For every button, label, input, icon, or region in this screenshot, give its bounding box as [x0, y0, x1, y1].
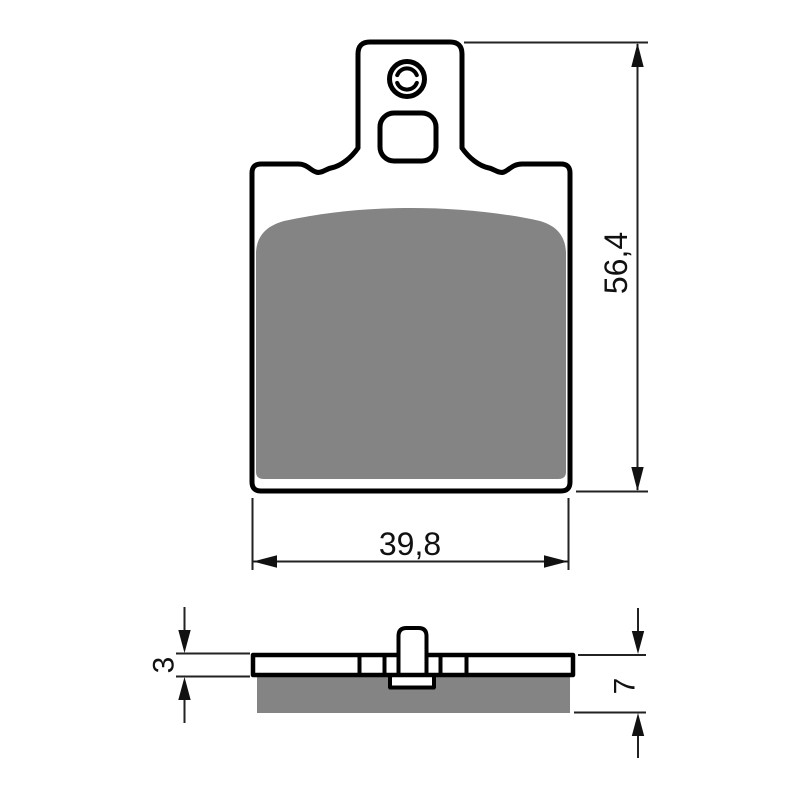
arrowhead-up-icon: [178, 677, 190, 700]
plate-thickness-label: 3: [148, 657, 181, 674]
arrowhead-down-icon: [178, 630, 190, 653]
pad-thickness-label: 7: [609, 678, 642, 695]
height-dimension-label: 56,4: [598, 232, 634, 294]
arrowhead-up-icon: [631, 43, 643, 67]
friction-material-front: [256, 208, 566, 479]
drawing-canvas: 56,4 39,8: [0, 0, 800, 800]
arrowhead-left-icon: [253, 555, 277, 567]
plate-thickness-dimension-group: 3: [148, 607, 251, 723]
centre-tab-side: [399, 628, 427, 658]
arrowhead-down-icon: [631, 467, 643, 491]
arrowhead-right-icon: [544, 555, 568, 567]
width-dimension-group: 39,8: [253, 498, 569, 570]
square-mounting-hole: [380, 113, 436, 161]
front-view: 56,4 39,8: [252, 42, 648, 570]
arrowhead-up-icon: [632, 713, 644, 736]
width-dimension-label: 39,8: [379, 526, 441, 562]
technical-drawing: 56,4 39,8: [0, 0, 800, 800]
pad-thickness-dimension-group: 7: [574, 608, 646, 758]
arrowhead-down-icon: [632, 631, 644, 654]
side-view: 3 7: [148, 607, 647, 758]
